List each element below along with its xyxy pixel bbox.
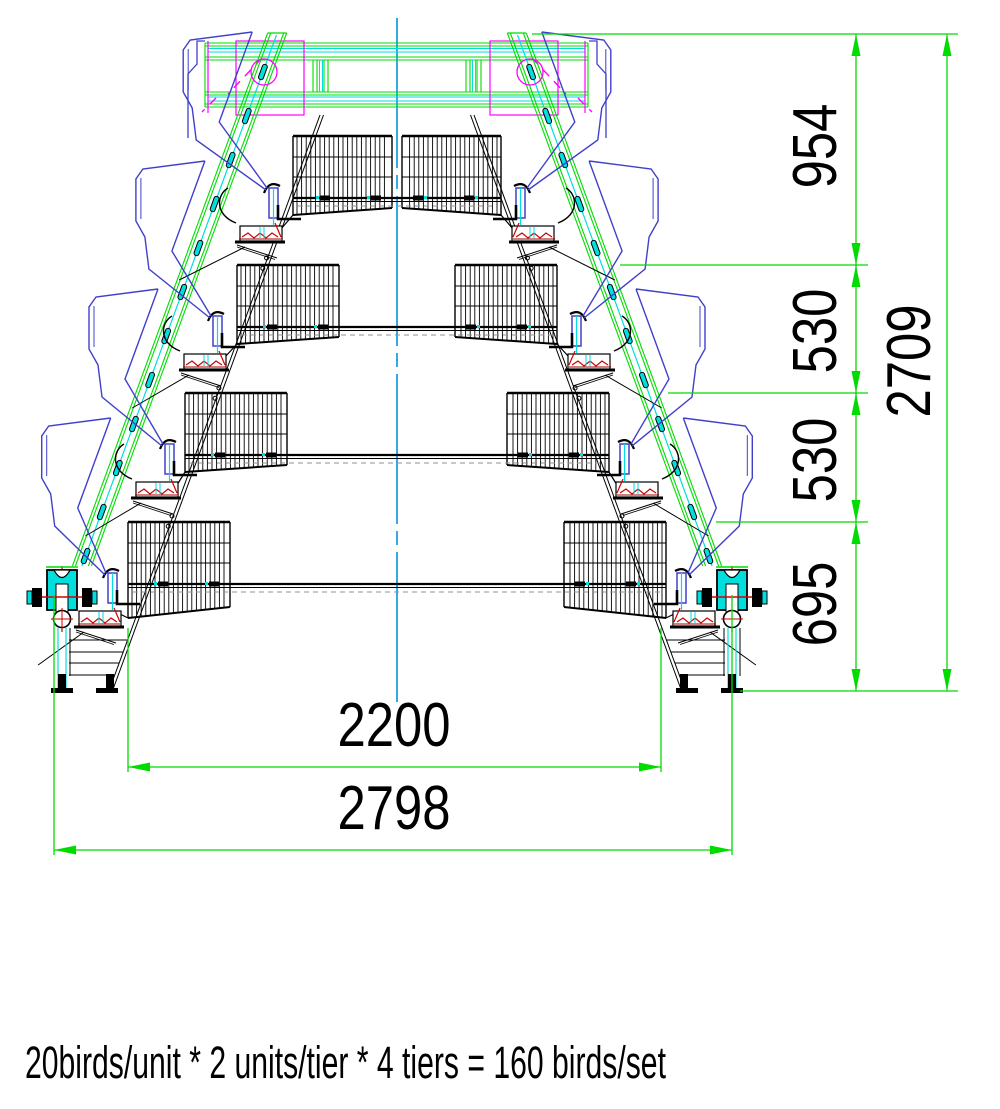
strut-foot-base xyxy=(96,688,118,693)
panel-floor-edge xyxy=(564,607,666,618)
left-feed-hopper xyxy=(183,32,267,190)
leg-slot xyxy=(591,240,601,257)
axle-cap xyxy=(762,591,767,604)
rail-clip xyxy=(569,453,579,458)
leg-slot xyxy=(639,372,649,389)
leg-slot xyxy=(542,108,552,125)
trough-brace xyxy=(573,373,613,386)
rail-clip xyxy=(626,582,636,587)
panel-floor-edge xyxy=(455,337,557,344)
frame-corner-right xyxy=(589,41,606,138)
axle-block xyxy=(82,588,92,607)
leg-slot xyxy=(129,416,139,433)
hopper-outline xyxy=(584,161,658,318)
rail-clip-mark xyxy=(529,453,532,456)
rail-clip xyxy=(266,453,276,458)
rail-clip xyxy=(413,196,423,201)
rail-clip-mark xyxy=(367,196,370,199)
a-frame-layer-cage-cross-section: 954 530 530 695 2709 2200 2798 20birds/u… xyxy=(0,0,1000,1109)
dim-label-530-upper: 530 xyxy=(781,289,850,374)
rail-clip-mark xyxy=(424,196,427,199)
dimension-arrow xyxy=(943,669,952,691)
rail-clip xyxy=(158,582,168,587)
trough-brace xyxy=(621,501,661,514)
axle-block xyxy=(752,588,762,607)
axle-cap xyxy=(27,591,32,604)
panel-floor-edge xyxy=(402,208,501,215)
frame-brace-dashed xyxy=(202,98,216,112)
dimension-arrow xyxy=(852,669,861,691)
axle-block xyxy=(702,588,712,607)
rail-clip-mark xyxy=(637,582,640,585)
leg-slot xyxy=(687,504,697,521)
leg-slot xyxy=(97,504,107,521)
trough-leg-brace xyxy=(38,632,84,665)
dim-label-954: 954 xyxy=(781,104,850,189)
strut-foot-stem xyxy=(106,674,114,688)
leg-slot xyxy=(193,240,203,257)
rail-clip xyxy=(267,325,277,330)
dim-label-2200: 2200 xyxy=(337,691,450,760)
trough-brace xyxy=(678,630,718,643)
dim-label-530-lower: 530 xyxy=(781,418,850,503)
cage-structure xyxy=(27,18,767,705)
strut-foot-stem xyxy=(680,674,688,688)
rail-clip xyxy=(464,196,474,201)
trough-brace xyxy=(133,501,173,514)
trough-brace xyxy=(181,373,221,386)
trough-leg-brace xyxy=(179,247,245,280)
rail-clip-mark xyxy=(477,325,480,328)
leg-slot xyxy=(145,372,155,389)
dimension-arrow xyxy=(54,846,76,855)
leg-slot xyxy=(558,152,568,169)
rail-clip xyxy=(318,325,328,330)
trough-brace xyxy=(76,630,116,643)
dimension-arrow xyxy=(128,763,150,772)
leg-slot xyxy=(226,152,236,169)
hopper-outline xyxy=(183,32,266,190)
dimension-arrow xyxy=(852,522,861,544)
panel-floor-edge xyxy=(237,337,339,344)
panel-floor-edge xyxy=(128,607,230,618)
left-mesh-panel xyxy=(225,265,339,357)
left-wheel-assembly xyxy=(27,566,97,693)
dimension-arrow xyxy=(852,34,861,56)
rail-clip xyxy=(466,325,476,330)
dimension-labels: 954 530 530 695 2709 2200 2798 20birds/u… xyxy=(25,104,944,1089)
dim-label-2798: 2798 xyxy=(337,774,450,843)
leg-slot xyxy=(655,416,665,433)
leg-slot xyxy=(242,108,252,125)
hopper-outline xyxy=(528,32,611,190)
right-feed-hopper xyxy=(631,289,705,446)
rail-clip xyxy=(517,325,527,330)
rail-clip xyxy=(518,453,528,458)
rail-clip-mark xyxy=(262,453,265,456)
panel-floor-edge xyxy=(507,465,609,472)
right-feed-hopper xyxy=(527,32,611,190)
rail-clip-mark xyxy=(205,582,208,585)
leveling-foot-stem xyxy=(58,674,66,688)
dimension-arrow xyxy=(852,265,861,287)
rail-clip-mark xyxy=(475,196,478,199)
dim-label-2709: 2709 xyxy=(875,304,944,417)
right-mesh-panel xyxy=(455,265,569,357)
left-mesh-panel xyxy=(177,393,287,485)
rail-clip-mark xyxy=(211,453,214,456)
rail-clip xyxy=(575,582,585,587)
right-feed-hopper xyxy=(583,161,658,318)
axle-cap xyxy=(92,591,97,604)
rail-clip-mark xyxy=(154,582,157,585)
trough-brace xyxy=(517,245,557,258)
dimension-arrow xyxy=(852,500,861,522)
trough-leg-brace xyxy=(710,632,756,665)
rail-clip-mark xyxy=(586,582,589,585)
frame-corner-left xyxy=(188,41,205,138)
panel-floor-edge xyxy=(293,208,392,215)
right-mesh-panel xyxy=(402,136,513,229)
left-feed-hopper xyxy=(136,161,211,318)
dim-label-695: 695 xyxy=(781,562,850,647)
dimension-arrow xyxy=(852,371,861,393)
capacity-caption: 20birds/unit * 2 units/tier * 4 tiers = … xyxy=(25,1038,666,1089)
rail-clip-mark xyxy=(314,325,317,328)
rail-clip-mark xyxy=(580,453,583,456)
axle-block xyxy=(32,588,42,607)
leg-slot xyxy=(210,196,220,213)
left-mesh-panel xyxy=(281,136,392,229)
left-leg-rail xyxy=(91,33,286,566)
dimension-arrow xyxy=(852,393,861,415)
rail-clip xyxy=(320,196,330,201)
right-mesh-panel xyxy=(507,393,617,485)
rail-clip xyxy=(215,453,225,458)
rail-clip xyxy=(209,582,219,587)
leg-slot xyxy=(574,196,584,213)
dimension-arrow xyxy=(710,846,732,855)
leg-slot xyxy=(258,64,268,81)
hopper-outline xyxy=(136,161,210,318)
dimension-arrow xyxy=(639,763,661,772)
right-leg-rail xyxy=(507,33,702,566)
rail-clip-mark xyxy=(316,196,319,199)
trough-brace xyxy=(237,245,277,258)
left-feed-hopper xyxy=(89,289,163,446)
strut-foot-base xyxy=(676,688,698,693)
cage-drawing-canvas: 954 530 530 695 2709 2200 2798 20birds/u… xyxy=(0,0,1000,1109)
panel-floor-edge xyxy=(185,465,287,472)
axle-cap xyxy=(697,591,702,604)
rail-clip-mark xyxy=(528,325,531,328)
rail-clip xyxy=(371,196,381,201)
dimension-arrow xyxy=(852,243,861,265)
leg-slot xyxy=(526,64,536,81)
rail-clip-mark xyxy=(263,325,266,328)
dimension-arrow xyxy=(943,34,952,56)
trough-leg-brace xyxy=(549,247,615,280)
